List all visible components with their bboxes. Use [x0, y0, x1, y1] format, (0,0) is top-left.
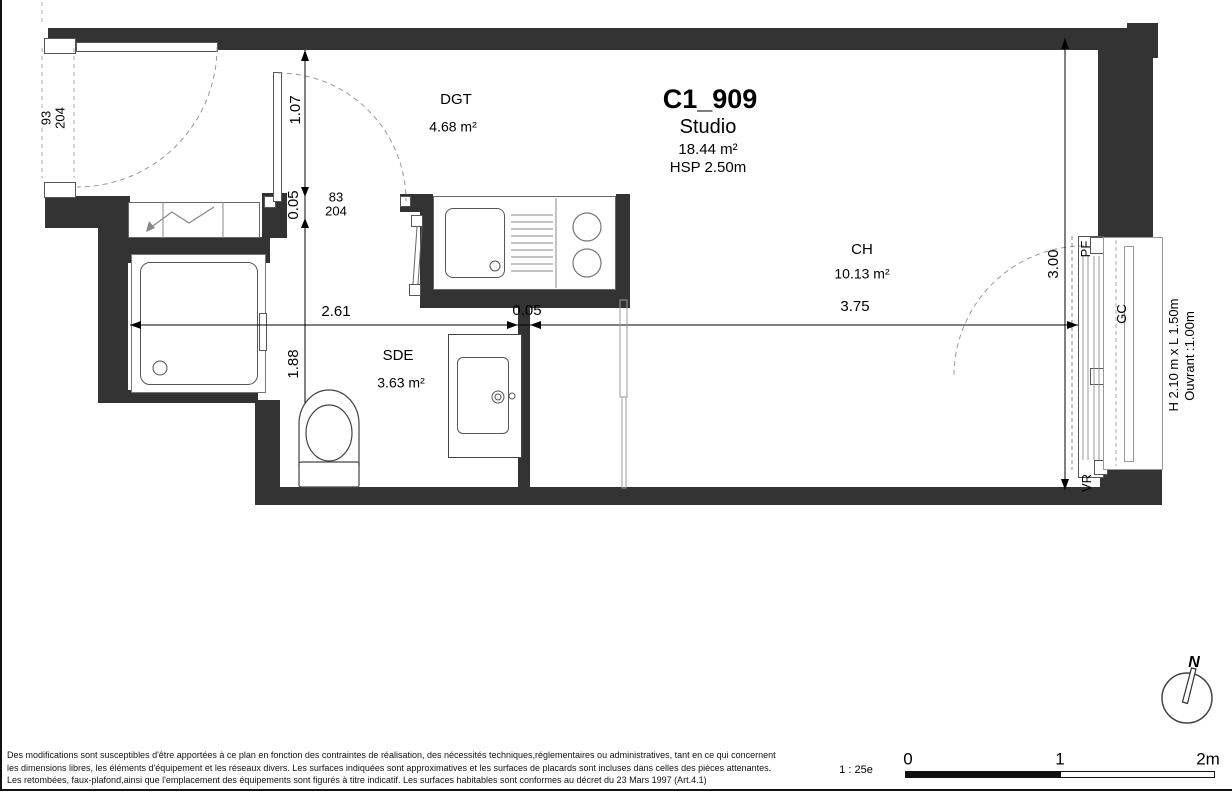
page-border-bottom — [0, 789, 1232, 791]
window-size-label: H 2.10 m x L 1.50m — [1167, 299, 1181, 412]
unit-type: Studio — [680, 116, 737, 138]
scale-bar-open — [1060, 771, 1215, 778]
scale-ratio: 1 : 25e — [839, 764, 873, 776]
door83-arc — [278, 73, 406, 201]
sliding-door-block-top — [411, 215, 423, 227]
shower-door — [259, 313, 267, 351]
shutter-vr-block — [1100, 468, 1162, 505]
room-ch-area: 10.13 m² — [834, 266, 889, 281]
scale-bar-solid — [905, 771, 1060, 778]
washbasin-bowl — [457, 357, 509, 434]
wall-right-cap — [1127, 23, 1158, 58]
window-pf-label: PF — [1079, 241, 1093, 258]
window-frame — [1078, 236, 1104, 478]
shower-tray — [140, 262, 258, 385]
unit-id: C1_909 — [663, 85, 758, 115]
north-label: N — [1188, 654, 1200, 672]
kitchen-hinge-plate — [400, 196, 411, 207]
wall-right-upper — [1098, 28, 1153, 240]
disclaimer-line-2: les dimensions libres, les éléments d'éq… — [7, 762, 776, 775]
dim-0-05-h: 0.05 — [512, 303, 541, 320]
disclaimer-line-3: Les retombées, faux-plafond,ainsi que l'… — [7, 774, 776, 787]
door-entrance-size: 93 204 — [40, 107, 69, 129]
dim-1-88: 1.88 — [286, 349, 303, 378]
shutter-vr-label: VR — [1080, 474, 1094, 492]
wall-bottom — [255, 487, 1100, 505]
wall-sde-left — [255, 400, 280, 490]
dim-0-05-v: 0.05 — [286, 190, 303, 219]
wall-left-entry — [45, 196, 130, 228]
window-casement-arc — [954, 246, 1084, 376]
door83-leaf — [273, 72, 282, 202]
dim-3-75: 3.75 — [840, 299, 869, 316]
dim-2-61: 2.61 — [321, 304, 350, 321]
floor-plan: C1_909 Studio 18.44 m² HSP 2.50m DGT 4.6… — [0, 0, 1232, 800]
window-opening-label: Ouvrant :1.00m — [1183, 311, 1197, 401]
unit-area: 18.44 m² — [678, 142, 737, 159]
dim-1-07: 1.07 — [288, 95, 305, 124]
sliding-door-block-bottom — [409, 284, 421, 296]
wall-kitchen-right — [616, 194, 630, 294]
door-interior-size: 83 204 — [325, 191, 347, 220]
room-dgt-name: DGT — [440, 92, 472, 109]
door-entrance-width: 93 — [40, 107, 54, 129]
wall-kitchen-left — [420, 194, 433, 294]
entrance-door-arc — [77, 47, 217, 187]
door-interior-height: 204 — [325, 205, 347, 219]
unit-ceiling-height: HSP 2.50m — [670, 160, 746, 177]
room-sde-name: SDE — [383, 348, 414, 365]
room-ch-name: CH — [851, 242, 873, 259]
ch-partition-line — [620, 300, 627, 488]
entrance-jamb-top — [44, 38, 76, 54]
disclaimer-text: Des modifications sont susceptibles d'êt… — [7, 749, 776, 787]
guardrail-slot — [1124, 246, 1134, 462]
dgt-cabinet — [128, 202, 260, 238]
north-arrow — [1162, 668, 1212, 723]
room-dgt-area: 4.68 m² — [429, 119, 476, 134]
guardrail-gc-label: GC — [1115, 304, 1129, 324]
entrance-jamb-bottom — [44, 182, 76, 198]
dim-3-00: 3.00 — [1046, 249, 1063, 278]
disclaimer-line-1: Des modifications sont susceptibles d'êt… — [7, 749, 776, 762]
dim-arrows-horizontal — [130, 321, 1078, 329]
kitchen-sink — [445, 208, 505, 278]
toilet — [299, 390, 359, 487]
room-sde-area: 3.63 m² — [377, 375, 424, 390]
page-border-left — [0, 0, 2, 791]
entrance-door-leaf — [76, 42, 218, 52]
scale-tick-2m: 2m — [1196, 751, 1220, 770]
scale-tick-0: 0 — [903, 751, 912, 770]
door-interior-width: 83 — [325, 191, 347, 205]
door-entrance-height: 204 — [54, 107, 68, 129]
scale-tick-1: 1 — [1055, 751, 1064, 770]
